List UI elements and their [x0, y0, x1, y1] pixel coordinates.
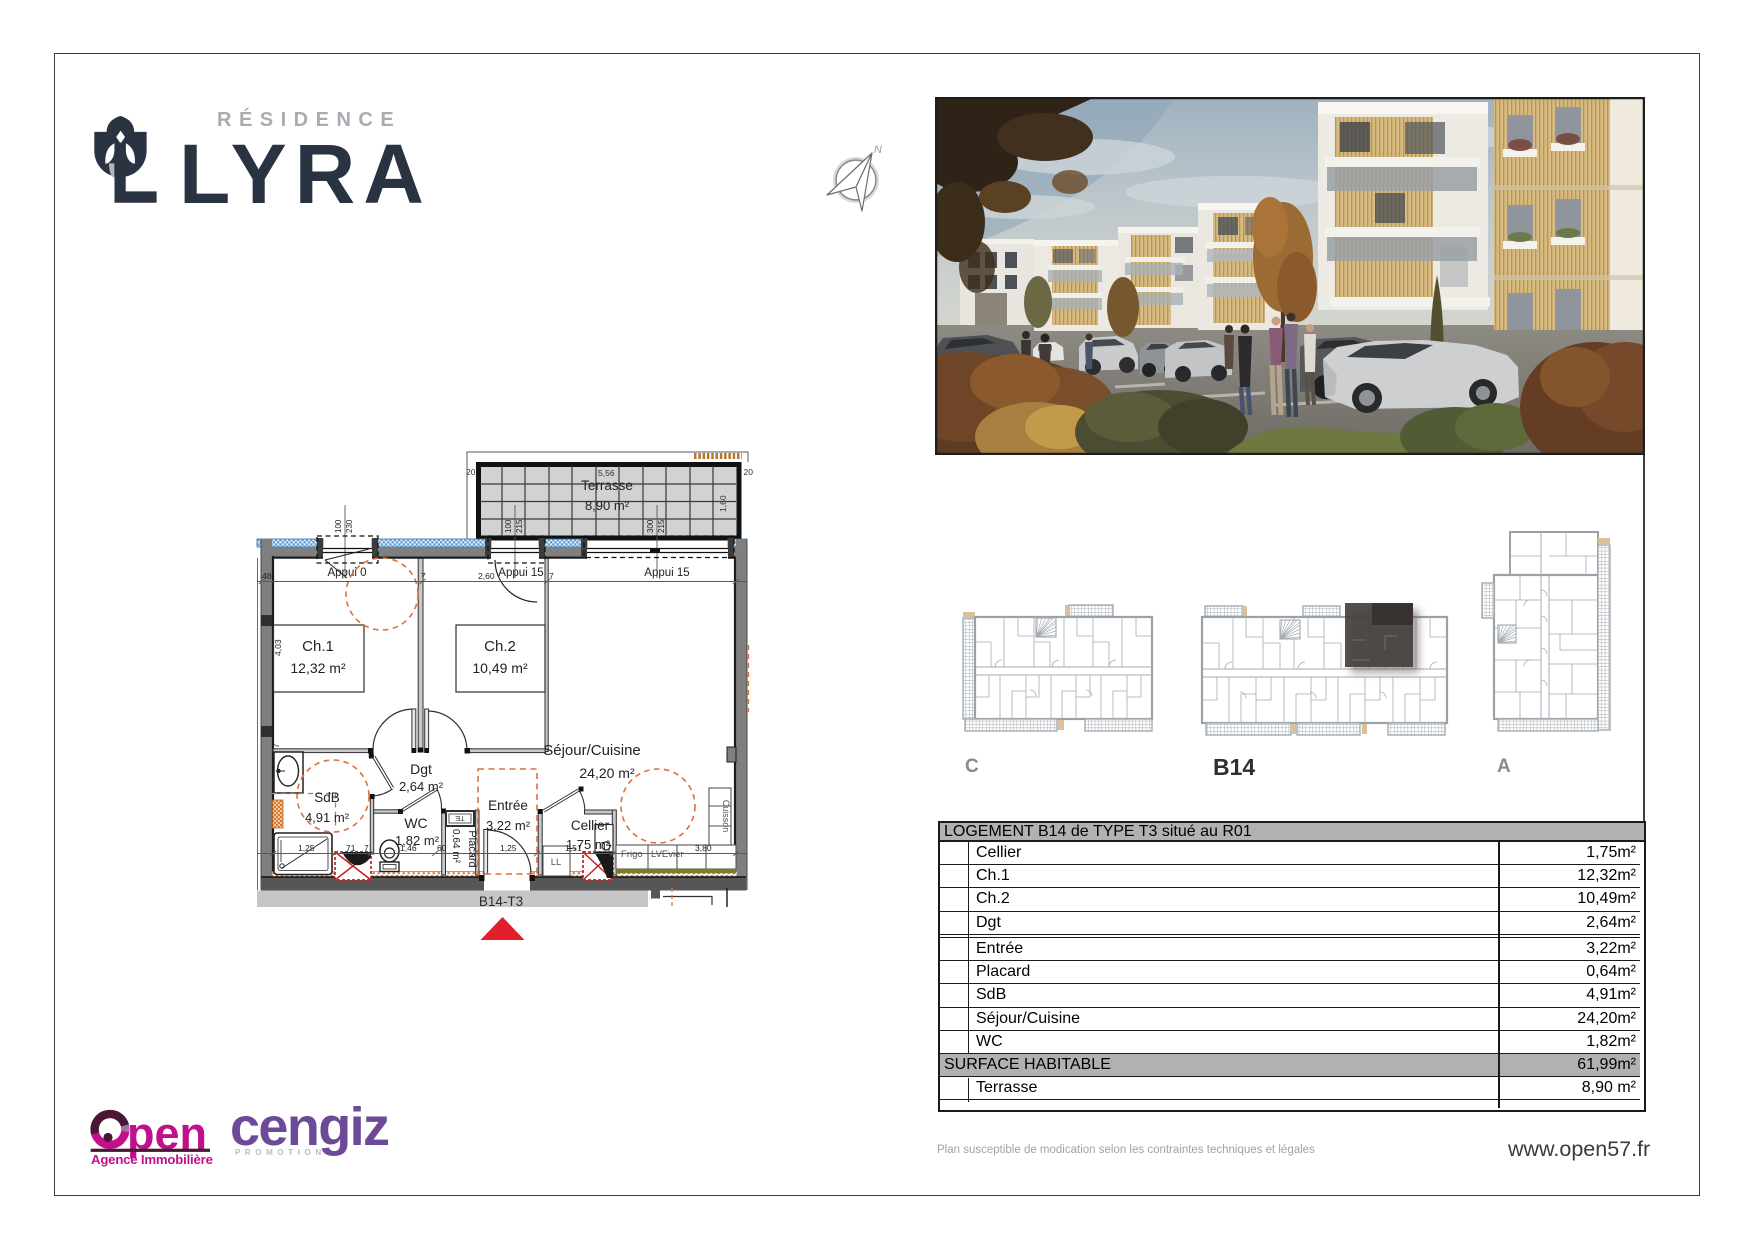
svg-text:Ch.1: Ch.1 [302, 638, 334, 655]
svg-text:7: 7 [549, 571, 554, 581]
svg-text:0,64 m²: 0,64 m² [450, 829, 461, 864]
svg-text:B14: B14 [1213, 754, 1255, 780]
svg-text:Dgt: Dgt [410, 761, 432, 777]
svg-text:3,22 m²: 3,22 m² [486, 818, 531, 833]
svg-text:5,56: 5,56 [598, 468, 615, 478]
svg-text:24,20 m²: 24,20 m² [579, 765, 635, 781]
svg-text:7: 7 [364, 843, 369, 853]
svg-text:PROMOTION: PROMOTION [235, 1148, 326, 1157]
svg-text:Séjour/Cuisine: Séjour/Cuisine [543, 742, 641, 759]
svg-text:WC: WC [404, 815, 427, 831]
svg-text:215: 215 [657, 519, 666, 533]
svg-text:A: A [1497, 756, 1511, 777]
svg-text:Agence Immobilière: Agence Immobilière [91, 1152, 213, 1167]
svg-text:Cellier: Cellier [571, 818, 610, 833]
svg-text:Appui 0: Appui 0 [327, 567, 366, 579]
svg-text:N: N [874, 144, 882, 156]
svg-text:20: 20 [744, 467, 754, 477]
svg-text:2,60: 2,60 [478, 571, 495, 581]
svg-text:Entrée: Entrée [488, 798, 528, 813]
svg-text:1,25: 1,25 [298, 843, 315, 853]
svg-text:20: 20 [466, 467, 476, 477]
svg-text:C: C [965, 756, 979, 777]
svg-text:48: 48 [262, 571, 272, 581]
svg-text:2,64 m²: 2,64 m² [399, 779, 444, 794]
svg-text:SdB: SdB [314, 790, 340, 805]
svg-text:1,25: 1,25 [500, 843, 517, 853]
svg-text:100: 100 [504, 519, 513, 533]
svg-text:1,82 m²: 1,82 m² [395, 833, 440, 848]
svg-text:215: 215 [515, 519, 524, 533]
svg-text:3,80: 3,80 [695, 843, 712, 853]
svg-text:LL: LL [551, 857, 562, 868]
svg-text:71: 71 [346, 843, 356, 853]
svg-text:B14-T3: B14-T3 [479, 894, 523, 909]
svg-text:1,60: 1,60 [718, 495, 728, 512]
svg-text:300: 300 [646, 519, 655, 533]
svg-text:Appui 15: Appui 15 [498, 567, 543, 579]
svg-text:12,32 m²: 12,32 m² [290, 660, 346, 676]
svg-text:Cuisson: Cuisson [721, 800, 731, 833]
svg-text:Frigo: Frigo [621, 849, 643, 860]
svg-text:TE: TE [455, 814, 465, 823]
svg-text:8,90 m²: 8,90 m² [585, 498, 630, 513]
svg-text:Placard: Placard [466, 830, 478, 867]
svg-text:230: 230 [345, 519, 354, 533]
svg-text:Appui 15: Appui 15 [644, 567, 689, 579]
svg-text:Terrasse: Terrasse [581, 478, 633, 493]
svg-text:7: 7 [271, 743, 281, 748]
svg-text:4,03: 4,03 [273, 639, 283, 656]
svg-text:4,91 m²: 4,91 m² [305, 810, 350, 825]
svg-text:Ch.2: Ch.2 [484, 638, 516, 655]
svg-text:LVEvier: LVEvier [651, 849, 684, 860]
svg-text:100: 100 [334, 519, 343, 533]
svg-text:7: 7 [421, 571, 426, 581]
svg-text:10,49 m²: 10,49 m² [472, 660, 528, 676]
